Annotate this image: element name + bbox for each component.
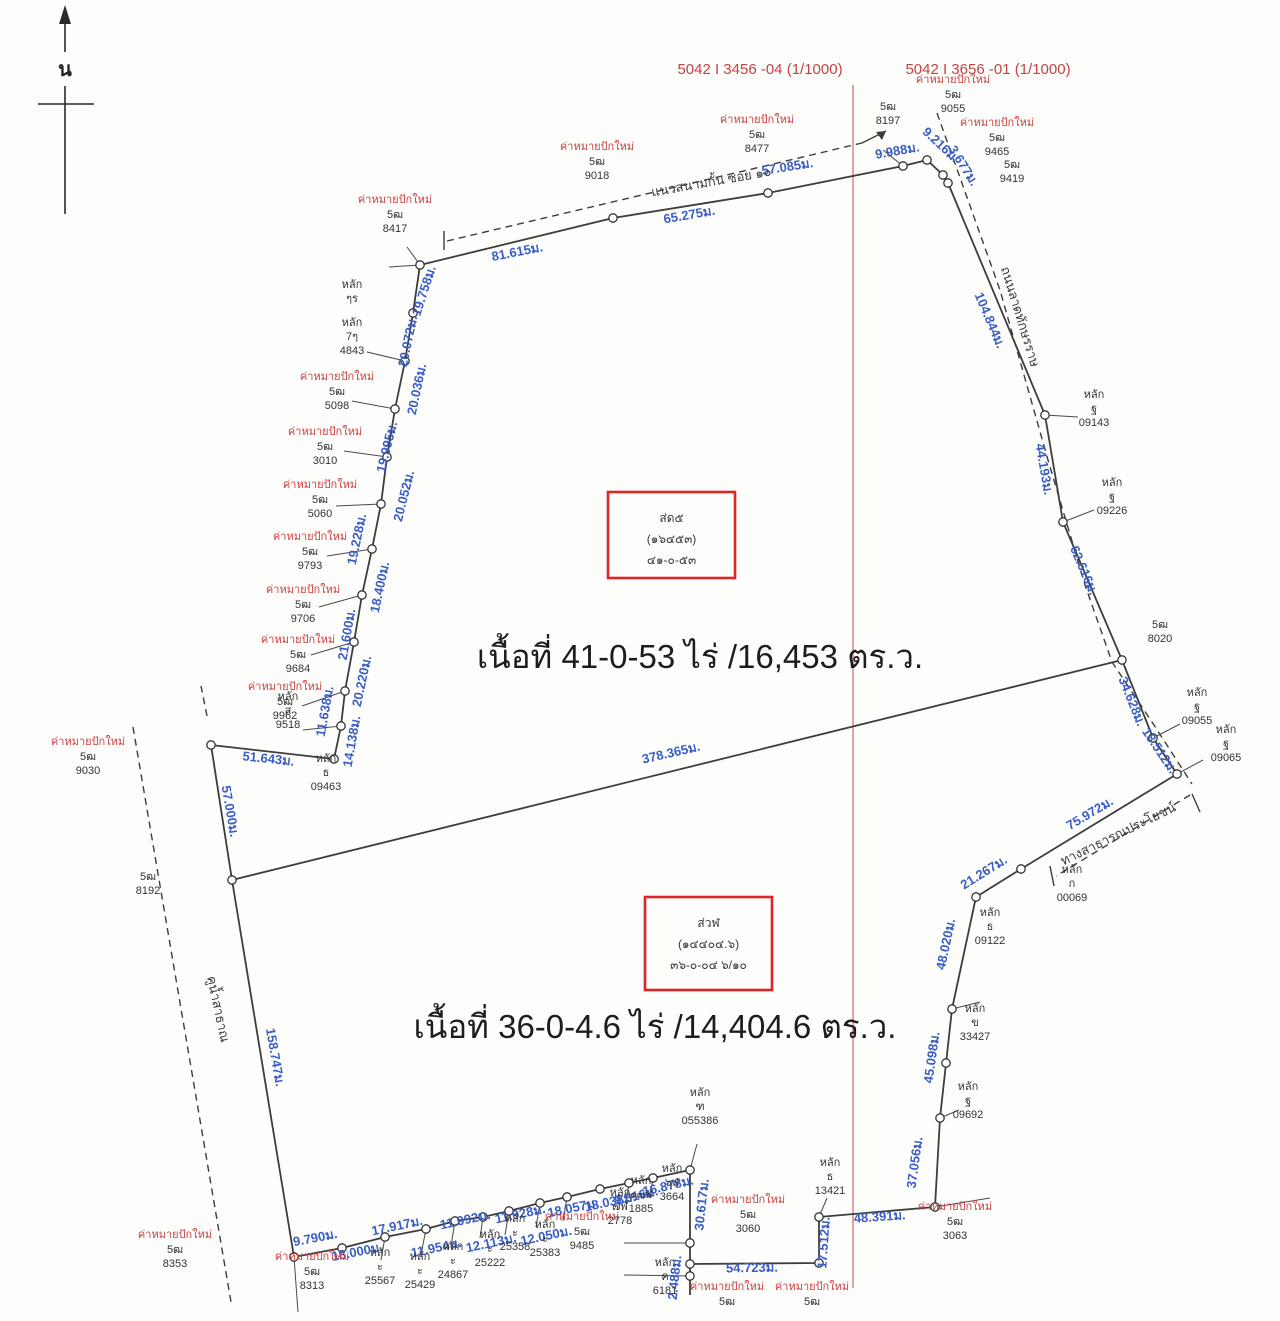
boundary-post-label: 25383 bbox=[530, 1247, 561, 1259]
survey-point-marker bbox=[1118, 656, 1126, 664]
measurement-label: 81.615ม. bbox=[490, 239, 544, 264]
boundary-post-label: หลัก bbox=[1187, 687, 1208, 699]
boundary-post-label: 25429 bbox=[405, 1279, 436, 1291]
new-stake-code: 5ฒ bbox=[317, 441, 333, 453]
boundary-post-label: หลัก bbox=[480, 1229, 501, 1241]
survey-point-marker bbox=[936, 1114, 944, 1122]
new-stake-code: 5ฒ bbox=[574, 1226, 590, 1238]
new-stake-label: ค่าหมายปักใหม่ bbox=[960, 116, 1034, 129]
measurement-label: 44.193ม. bbox=[1033, 442, 1057, 496]
boundary-post-label: หลัก bbox=[278, 691, 299, 703]
parcel-box-line: ๔๑-๐-๕๓ bbox=[647, 553, 696, 567]
new-stake-number: 9018 bbox=[585, 170, 609, 182]
measurement-label: 54.723ม. bbox=[726, 1260, 778, 1276]
boundary-post-label: ฐ bbox=[1109, 491, 1115, 503]
boundary-post-label: หลัก bbox=[535, 1219, 556, 1231]
measurement-label: 34.628ม. bbox=[1115, 674, 1148, 728]
boundary-post-label: หลัก bbox=[820, 1157, 841, 1169]
survey-point-marker bbox=[686, 1239, 694, 1247]
measurement-label: 19.995ม. bbox=[373, 420, 400, 474]
survey-point-marker bbox=[1059, 518, 1067, 526]
boundary-post-label: หลัก bbox=[1062, 864, 1083, 876]
measurement-label: 19.228ม. bbox=[344, 512, 369, 566]
boundary-post-label: ๖ฬ bbox=[665, 1177, 680, 1189]
survey-point-marker bbox=[1017, 865, 1025, 873]
new-stake-code: 5ฒ bbox=[312, 494, 328, 506]
measurement-label: 62.616ม. bbox=[1067, 543, 1101, 597]
new-stake-code: 5ฒ bbox=[945, 89, 961, 101]
boundary-post-label: ะ bbox=[450, 1255, 456, 1267]
boundary-post-label: หลัก bbox=[980, 907, 1001, 919]
measurement-label: 51.643ม. bbox=[242, 748, 295, 768]
new-stake-label: ค่าหมายปักใหม่ bbox=[711, 1193, 785, 1206]
measurement-label: 19.758ม. bbox=[409, 264, 439, 318]
new-stake-code: 5ฒ bbox=[304, 1266, 320, 1278]
boundary-post-label: ะ bbox=[377, 1261, 383, 1273]
boundary-post-label: 09226 bbox=[1097, 505, 1128, 517]
new-stake-number: 9055 bbox=[941, 103, 965, 115]
north-arrow bbox=[38, 5, 94, 214]
boundary-post-label: หลัก bbox=[410, 1251, 431, 1263]
new-stake-label: ค่าหมายปักใหม่ bbox=[51, 735, 125, 748]
parcel-area-text: เนื้อที่ 41-0-53 ไร่ /16,453 ตร.ว. bbox=[477, 633, 923, 675]
survey-point-marker bbox=[948, 1005, 956, 1013]
new-stake-number: 9706 bbox=[291, 613, 315, 625]
measurement-label: 65.275ม. bbox=[662, 203, 716, 227]
parcel-area-labels: เนื้อที่ 41-0-53 ไร่ /16,453 ตร.ว.เนื้อท… bbox=[414, 633, 924, 1045]
measurement-label: 20.220ม. bbox=[349, 654, 374, 708]
survey-point-marker bbox=[942, 1059, 950, 1067]
new-stake-code: 5ฒ bbox=[947, 1216, 963, 1228]
boundary-post-label: 5ฒ bbox=[1152, 619, 1168, 631]
measurement-label: 48.391ม. bbox=[853, 1207, 906, 1226]
boundary-post-label: ก bbox=[1069, 878, 1076, 890]
boundary-post-label: ๆร bbox=[346, 293, 358, 305]
parcel-box-line: ๓๖-๐-๐๔ ๖/๑๐ bbox=[670, 958, 747, 972]
boundary-post-label: ๑๗ฬ bbox=[630, 1189, 653, 1201]
boundary-post-label: 6181 bbox=[653, 1285, 677, 1297]
survey-point-marker bbox=[358, 591, 366, 599]
boundary-post-label: ะ bbox=[542, 1233, 548, 1245]
new-stake-code: 5ฒ bbox=[804, 1296, 820, 1308]
boundary-post-label: 09122 bbox=[975, 935, 1006, 947]
boundary-post-label: หลัก bbox=[505, 1213, 526, 1225]
boundary-post-label: ๗ฬ bbox=[612, 1201, 628, 1213]
new-stake-code: 5ฒ bbox=[290, 649, 306, 661]
new-stake-number: 5098 bbox=[325, 400, 349, 412]
parcel-box-line: (๑๔๔๐๔.๖) bbox=[678, 937, 739, 951]
new-stake-label: ค่าหมายปักใหม่ bbox=[275, 1250, 349, 1263]
road-name-label: แนวสนามกั้น ซอย ๑๐ bbox=[650, 162, 773, 200]
boundary-post-label: หลัก bbox=[342, 279, 363, 291]
parcel-box-line: ส่ด๕ bbox=[659, 511, 683, 525]
new-stake-label: ค่าหมายปักใหม่ bbox=[918, 1200, 992, 1213]
new-stake-number: 8477 bbox=[745, 143, 769, 155]
boundary-post-label: ส bbox=[285, 705, 292, 717]
boundary-post-label: 09143 bbox=[1079, 417, 1110, 429]
road-name-label: คูน้ำสาธาณ bbox=[203, 974, 235, 1044]
measurement-label: 9.988ม. bbox=[874, 139, 921, 162]
parcel-area-text: เนื้อที่ 36-0-4.6 ไร่ /14,404.6 ตร.ว. bbox=[414, 1003, 897, 1045]
survey-point-marker bbox=[923, 156, 931, 164]
survey-point-marker bbox=[337, 722, 345, 730]
parcel-box-line: (๑๖๔๕๓) bbox=[647, 532, 697, 546]
survey-point-marker bbox=[341, 687, 349, 695]
boundary-post-label: 33427 bbox=[960, 1031, 991, 1043]
measurement-label: 18.400ม. bbox=[367, 560, 392, 614]
boundary-post-label: 2778 bbox=[608, 1215, 632, 1227]
boundary-post-label: หลัก bbox=[443, 1241, 464, 1253]
boundary-post-label: 25222 bbox=[475, 1257, 506, 1269]
survey-point-marker bbox=[377, 500, 385, 508]
label-connector-ticks bbox=[294, 150, 1203, 1312]
boundary-post-label: 09463 bbox=[311, 781, 342, 793]
boundary-post-label: 24867 bbox=[438, 1269, 469, 1281]
boundary-post-label: 5ฒ bbox=[140, 871, 156, 883]
boundary-post-label: 00069 bbox=[1057, 892, 1088, 904]
survey-point-marker bbox=[368, 545, 376, 553]
boundary-post-label: 25358 bbox=[500, 1241, 531, 1253]
measurement-label: 158.747ม. bbox=[263, 1027, 288, 1088]
measurement-label: 45.098ม. bbox=[921, 1031, 943, 1085]
new-stake-label: ค่าหมายปักใหม่ bbox=[138, 1228, 212, 1241]
boundary-post-label: หลัก bbox=[370, 1247, 391, 1259]
new-stake-code: 5ฒ bbox=[167, 1244, 183, 1256]
measurement-label: 21.267ม. bbox=[958, 852, 1010, 892]
boundary-post-label: 09692 bbox=[953, 1109, 984, 1121]
new-stake-code: 5ฒ bbox=[589, 156, 605, 168]
boundary-post-label: หลัก bbox=[690, 1087, 711, 1099]
new-stake-number: 3010 bbox=[313, 455, 337, 467]
boundary-post-label: 13421 bbox=[815, 1185, 846, 1197]
boundary-post-label: 3664 bbox=[660, 1191, 684, 1203]
new-stake-number: 9465 bbox=[985, 146, 1009, 158]
boundary-post-label: ธ bbox=[323, 767, 330, 779]
sheet-number-labels: 5042 I 3456 -04 (1/1000)5042 I 3656 -01 … bbox=[677, 61, 1070, 78]
new-stake-number: 3063 bbox=[943, 1230, 967, 1242]
boundary-post-label: 5ฒ bbox=[1004, 159, 1020, 171]
new-stake-number: 8353 bbox=[163, 1258, 187, 1270]
new-stake-label: ค่าหมายปักใหม่ bbox=[266, 583, 340, 596]
new-stake-code: 5ฒ bbox=[295, 599, 311, 611]
measurement-label: 9.790ม. bbox=[292, 1226, 339, 1249]
survey-point-marker bbox=[686, 1272, 694, 1280]
survey-point-marker bbox=[228, 876, 236, 884]
left-top-dashed-stub bbox=[201, 686, 207, 716]
new-stake-number: 9684 bbox=[286, 663, 310, 675]
sheet-number: 5042 I 3456 -04 (1/1000) bbox=[677, 61, 842, 78]
boundary-post-label: หลัก bbox=[1216, 724, 1237, 736]
boundary-post-label: หลัก bbox=[631, 1175, 652, 1187]
new-stake-code: 5ฒ bbox=[80, 751, 96, 763]
measurement-label: 20.052ม. bbox=[390, 469, 417, 523]
boundary-post-label: ข bbox=[971, 1017, 979, 1029]
survey-point-marker bbox=[972, 893, 980, 901]
boundary-post-label: ฐ bbox=[965, 1095, 971, 1107]
boundary-post-label: หลัก bbox=[965, 1003, 986, 1015]
boundary-post-label: 9419 bbox=[1000, 173, 1024, 185]
measurement-label: 20.036ม. bbox=[404, 362, 429, 416]
survey-point-marker bbox=[1041, 411, 1049, 419]
new-stake-code: 5ฒ bbox=[740, 1209, 756, 1221]
cadastral-plan-svg: ส่ด๕(๑๖๔๕๓)๔๑-๐-๕๓ส่วฬ(๑๔๔๐๔.๖)๓๖-๐-๐๔ ๖… bbox=[0, 0, 1280, 1321]
boundary-post-label: 055386 bbox=[682, 1115, 719, 1127]
boundary-post-label: ฑ bbox=[695, 1101, 704, 1113]
new-stake-number: 9793 bbox=[298, 560, 322, 572]
boundary-post-markers: หลักๆรหลัก7ๆ4843หลักส9518หลักธ094635ฒ819… bbox=[136, 101, 1242, 1297]
new-stake-label: ค่าหมายปักใหม่ bbox=[720, 113, 794, 126]
boundary-post-label: หลัก bbox=[1084, 389, 1105, 401]
survey-point-marker bbox=[391, 405, 399, 413]
new-stake-code: 5ฒ bbox=[302, 546, 318, 558]
new-stake-label: ค่าหมายปักใหม่ bbox=[300, 370, 374, 383]
new-stake-code: 5ฒ bbox=[749, 129, 765, 141]
boundary-post-label: ะ bbox=[417, 1265, 423, 1277]
measurement-label: 17.512ม. bbox=[814, 1216, 833, 1269]
survey-point-marker bbox=[609, 214, 617, 222]
boundary-post-label: หลัก bbox=[316, 753, 337, 765]
boundary-post-label: หลัก bbox=[342, 317, 363, 329]
boundary-post-label: 8192 bbox=[136, 885, 160, 897]
survey-map-page: ส่ด๕(๑๖๔๕๓)๔๑-๐-๕๓ส่วฬ(๑๔๔๐๔.๖)๓๖-๐-๐๔ ๖… bbox=[0, 0, 1280, 1321]
new-stake-markers: ค่าหมายปักใหม่5ฒ8417ค่าหมายปักใหม่5ฒ9018… bbox=[51, 73, 1034, 1308]
new-stake-code: 5ฒ bbox=[387, 209, 403, 221]
survey-point-marker bbox=[596, 1185, 604, 1193]
boundary-post-label: ะ bbox=[487, 1243, 493, 1255]
boundary-post-label: 25567 bbox=[365, 1275, 396, 1287]
boundary-post-label: 4843 bbox=[340, 345, 364, 357]
new-stake-label: ค่าหมายปักใหม่ bbox=[775, 1280, 849, 1293]
boundary-post-label: 1885 bbox=[629, 1203, 653, 1215]
boundary-post-label: หลัก bbox=[610, 1187, 631, 1199]
boundary-post-label: ฐ bbox=[1194, 701, 1200, 713]
new-stake-number: 9485 bbox=[570, 1240, 594, 1252]
boundary-post-label: หลัก bbox=[662, 1163, 683, 1175]
new-stake-label: ค่าหมายปักใหม่ bbox=[358, 193, 432, 206]
new-stake-number: 3060 bbox=[736, 1223, 760, 1235]
new-stake-code: 5ฒ bbox=[989, 132, 1005, 144]
boundary-post-label: 09065 bbox=[1211, 752, 1242, 764]
new-stake-label: ค่าหมายปักใหม่ bbox=[288, 425, 362, 438]
survey-point-marker bbox=[764, 189, 772, 197]
measurement-label: 18.512ม. bbox=[1139, 725, 1180, 776]
new-stake-code: 5ฒ bbox=[329, 386, 345, 398]
boundary-post-label: ธ bbox=[827, 1171, 834, 1183]
right-road-dashed bbox=[937, 113, 1192, 784]
new-stake-number: 8313 bbox=[300, 1280, 324, 1292]
boundary-post-label: 9518 bbox=[276, 719, 300, 731]
sheet-number: 5042 I 3656 -01 (1/1000) bbox=[905, 61, 1070, 78]
boundary-post-label: 8197 bbox=[876, 115, 900, 127]
boundary-post-label: ฐ bbox=[1223, 738, 1229, 750]
boundary-post-label: 09055 bbox=[1182, 715, 1213, 727]
measurement-label: 20.072ม. bbox=[395, 314, 420, 368]
new-stake-label: ค่าหมายปักใหม่ bbox=[273, 530, 347, 543]
new-stake-label: ค่าหมายปักใหม่ bbox=[283, 478, 357, 491]
north-letter: น bbox=[58, 59, 72, 81]
boundary-post-label: หลัก bbox=[1102, 477, 1123, 489]
boundary-post-label: ฐ bbox=[1091, 403, 1097, 415]
measurement-label: 37.056ม. bbox=[904, 1136, 926, 1190]
new-stake-number: 9030 bbox=[76, 765, 100, 777]
new-stake-label: ค่าหมายปักใหม่ bbox=[560, 140, 634, 153]
new-stake-label: ค่าหมายปักใหม่ bbox=[261, 633, 335, 646]
survey-point-marker bbox=[939, 171, 947, 179]
new-stake-number: 5060 bbox=[308, 508, 332, 520]
boundary-post-label: 5ฒ bbox=[880, 101, 896, 113]
survey-point-marker bbox=[944, 179, 952, 187]
survey-point-marker bbox=[899, 162, 907, 170]
measurement-label: 378.365ม. bbox=[640, 739, 701, 767]
boundary-post-label: หลัก bbox=[655, 1257, 676, 1269]
boundary-post-label: หลัก bbox=[958, 1081, 979, 1093]
new-stake-code: 5ฒ bbox=[719, 1296, 735, 1308]
boundary-post-label: ธ bbox=[987, 921, 994, 933]
measurement-label: 48.020ม. bbox=[933, 917, 958, 971]
boundary-post-label: 7ๆ bbox=[346, 331, 358, 343]
north-label: น bbox=[58, 59, 72, 81]
parcel-box-line: ส่วฬ bbox=[697, 916, 720, 930]
new-stake-number: 8417 bbox=[383, 223, 407, 235]
boundary-post-label: ะ bbox=[512, 1227, 518, 1239]
north-arrowhead-icon bbox=[59, 5, 71, 24]
new-stake-label: ค่าหมายปักใหม่ bbox=[690, 1280, 764, 1293]
boundary-post-label: 8020 bbox=[1148, 633, 1172, 645]
road-end-ticks bbox=[444, 131, 1200, 886]
survey-point-marker bbox=[686, 1260, 694, 1268]
survey-point-marker bbox=[207, 741, 215, 749]
boundary-post-label: ค bbox=[661, 1271, 668, 1283]
